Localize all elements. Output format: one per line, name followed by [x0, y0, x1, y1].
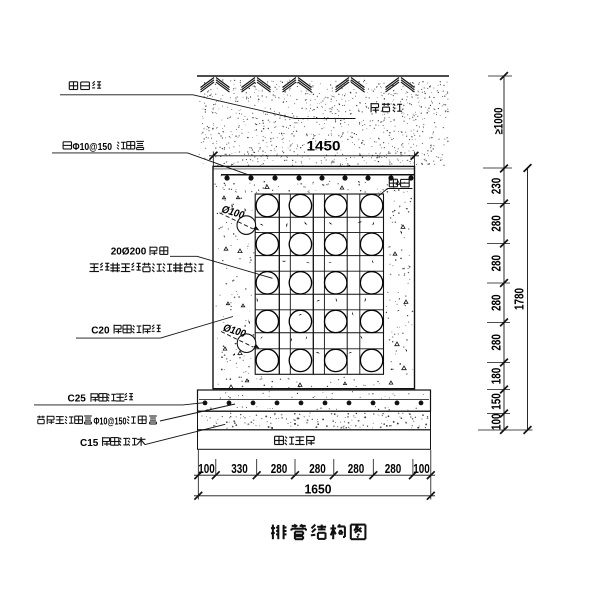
svg-text:150: 150: [489, 393, 504, 410]
svg-text:280: 280: [489, 255, 504, 272]
svg-text:280: 280: [348, 461, 365, 476]
svg-text:C20: C20: [91, 325, 110, 336]
svg-text:Φ10@150: Φ10@150: [94, 417, 127, 428]
svg-text:100: 100: [413, 461, 430, 476]
svg-text:100: 100: [489, 414, 504, 431]
svg-text:C25: C25: [68, 394, 87, 405]
svg-text:280: 280: [489, 294, 504, 311]
svg-text:Φ10@150: Φ10@150: [73, 141, 113, 153]
svg-text:20Ø200: 20Ø200: [111, 246, 147, 257]
svg-text:1780: 1780: [512, 288, 527, 310]
svg-text:230: 230: [489, 178, 504, 195]
svg-text:100: 100: [198, 461, 215, 476]
svg-text:1450: 1450: [307, 139, 341, 154]
svg-text:C15: C15: [80, 438, 99, 449]
svg-text:280: 280: [489, 215, 504, 232]
svg-text:180: 180: [489, 368, 504, 385]
svg-text:280: 280: [385, 461, 402, 476]
svg-text:280: 280: [271, 461, 288, 476]
svg-text:280: 280: [309, 461, 326, 476]
svg-text:1650: 1650: [305, 482, 332, 497]
svg-text:≥1000: ≥1000: [492, 107, 506, 134]
svg-text:330: 330: [231, 461, 248, 476]
svg-text:280: 280: [489, 334, 504, 351]
